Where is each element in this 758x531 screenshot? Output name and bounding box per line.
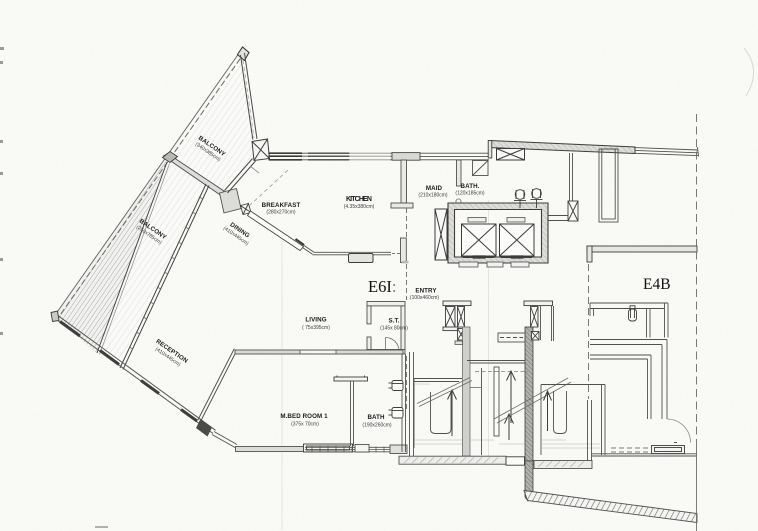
- svg-text:(145x 80cm): (145x 80cm): [380, 326, 408, 332]
- svg-text:KITCHEN: KITCHEN: [346, 196, 372, 203]
- svg-text:( 75x395cm): ( 75x395cm): [302, 325, 330, 331]
- svg-text:BATH: BATH: [367, 414, 385, 421]
- svg-text:ENTRY: ENTRY: [415, 288, 437, 295]
- svg-text:(100x460cm): (100x460cm): [410, 295, 440, 301]
- svg-text:LIVING: LIVING: [305, 317, 326, 324]
- svg-text:BREAKFAST: BREAKFAST: [262, 202, 301, 209]
- svg-text:E6I:: E6I:: [368, 277, 396, 296]
- svg-text:(280x270cm): (280x270cm): [266, 210, 296, 216]
- svg-text:BATH.: BATH.: [461, 183, 480, 190]
- svg-text:E4B: E4B: [643, 276, 671, 293]
- svg-text:(190x260cm): (190x260cm): [362, 423, 392, 429]
- svg-text:(120x185cm): (120x185cm): [455, 191, 485, 197]
- svg-text:S.T.: S.T.: [388, 318, 399, 325]
- svg-text:(375x 70cm): (375x 70cm): [291, 422, 319, 428]
- svg-text:MAID: MAID: [426, 185, 443, 192]
- svg-text:(4.35x380cm): (4.35x380cm): [344, 204, 375, 210]
- svg-text:M.BED ROOM 1: M.BED ROOM 1: [280, 413, 328, 420]
- svg-text:(210x180cm): (210x180cm): [418, 193, 448, 199]
